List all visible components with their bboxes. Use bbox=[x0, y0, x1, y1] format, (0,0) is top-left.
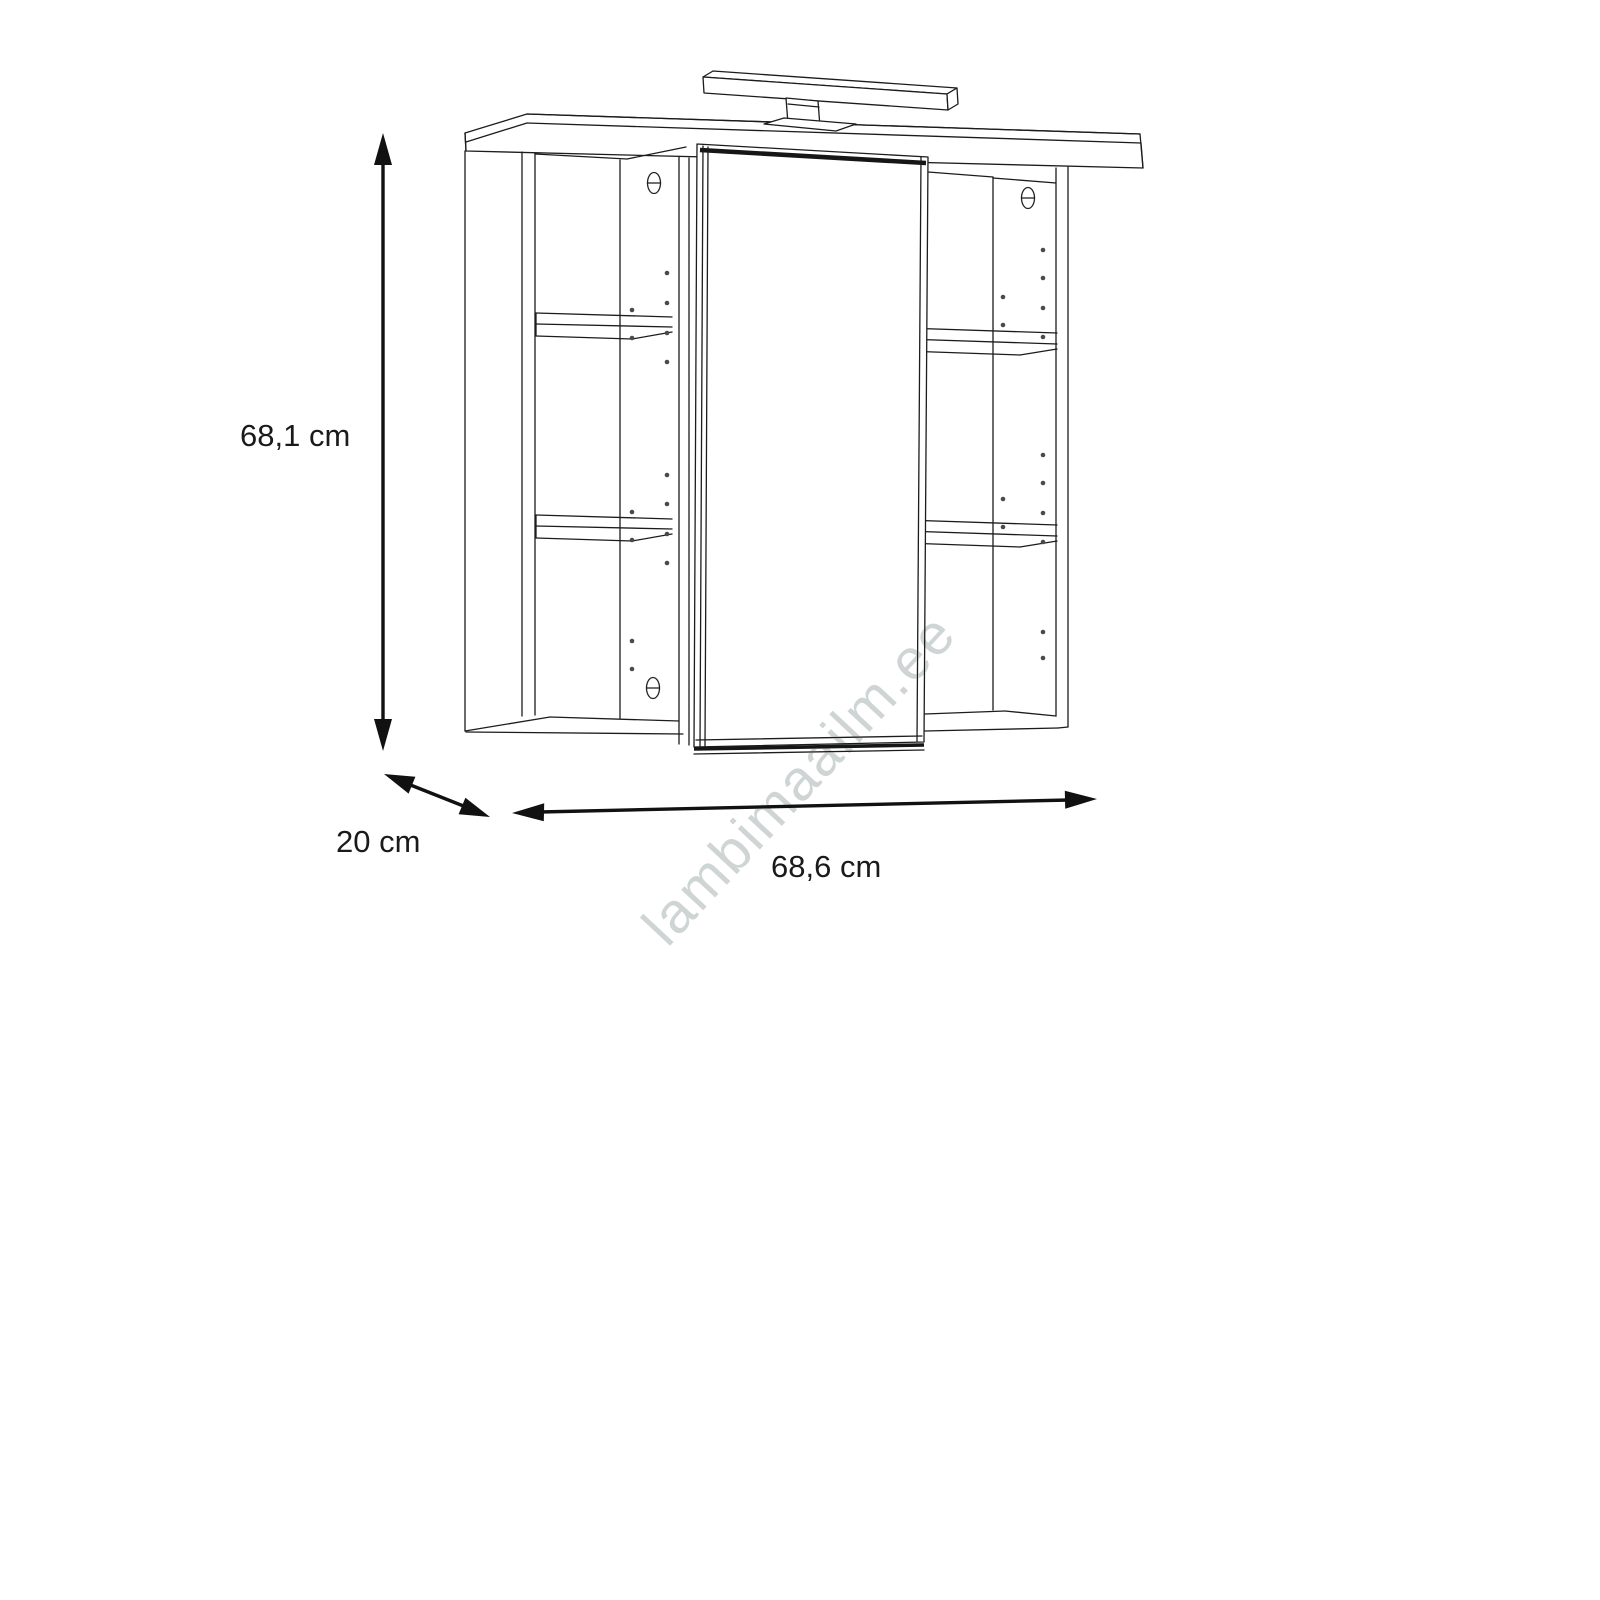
right-shelf-lower bbox=[905, 520, 1057, 547]
drawing-canvas: 68,1 cm 20 cm 68,6 cm lambimaailm.ee bbox=[0, 0, 1600, 1600]
depth-dimension-label: 20 cm bbox=[336, 824, 420, 859]
height-dimension-label: 68,1 cm bbox=[240, 418, 350, 453]
left-compartment bbox=[465, 147, 689, 745]
left-shelf-pin-holes bbox=[630, 271, 670, 672]
screw-hole-icon bbox=[647, 173, 661, 699]
left-shelf-upper bbox=[536, 313, 672, 339]
width-dimension-label: 68,6 cm bbox=[771, 849, 881, 884]
right-shelf-pin-holes bbox=[1001, 248, 1046, 661]
screw-hole-icon bbox=[1022, 188, 1035, 209]
depth-dimension-arrow bbox=[384, 774, 490, 817]
right-shelf-upper bbox=[905, 328, 1057, 355]
technical-drawing: 68,1 cm 20 cm 68,6 cm lambimaailm.ee bbox=[0, 0, 1600, 1600]
left-shelf-lower bbox=[536, 515, 672, 541]
height-dimension-arrow bbox=[374, 133, 392, 751]
